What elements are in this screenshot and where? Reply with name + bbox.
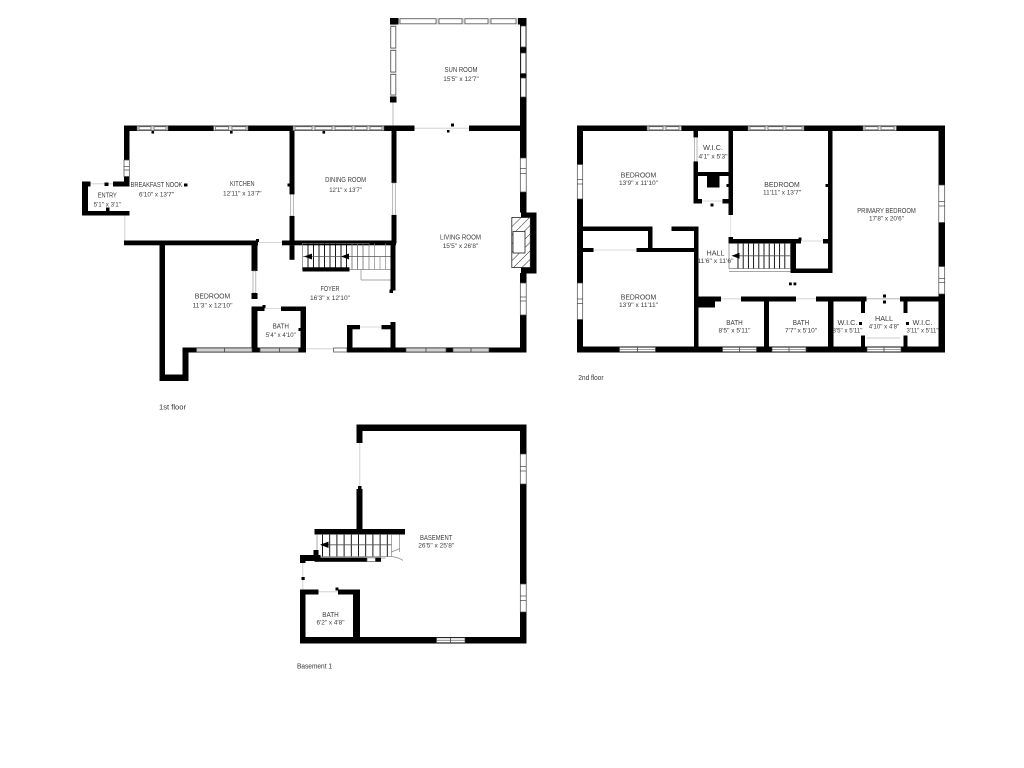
svg-text:5'4" x 4'10": 5'4" x 4'10"	[266, 332, 297, 339]
svg-text:HALL: HALL	[707, 249, 725, 258]
svg-text:BREAKFAST NOOK: BREAKFAST NOOK	[131, 180, 183, 189]
svg-text:4'10" x 4'8": 4'10" x 4'8"	[869, 323, 900, 330]
svg-text:12'1" x 13'7": 12'1" x 13'7"	[329, 187, 362, 194]
svg-text:15'5" x 26'8": 15'5" x 26'8"	[443, 243, 479, 250]
svg-text:BATH: BATH	[793, 318, 809, 327]
svg-text:SUN ROOM: SUN ROOM	[445, 65, 478, 74]
svg-text:BATH: BATH	[726, 318, 742, 327]
svg-text:FOYER: FOYER	[321, 284, 340, 293]
svg-text:PRIMARY BEDROOM: PRIMARY BEDROOM	[857, 206, 916, 215]
svg-text:LIVING ROOM: LIVING ROOM	[440, 233, 481, 242]
svg-text:8'5" x 5'11": 8'5" x 5'11"	[719, 327, 752, 334]
svg-text:3'11" x 5'11": 3'11" x 5'11"	[907, 327, 940, 334]
svg-text:HALL: HALL	[875, 314, 893, 323]
svg-text:W.I.C.: W.I.C.	[703, 143, 723, 152]
svg-text:W.I.C.: W.I.C.	[838, 318, 858, 327]
svg-text:12'11" x 13'7": 12'11" x 13'7"	[223, 190, 262, 197]
svg-text:BATH: BATH	[322, 610, 338, 619]
svg-text:BEDROOM: BEDROOM	[195, 291, 231, 300]
svg-text:26'5" x 25'8": 26'5" x 25'8"	[418, 542, 455, 549]
svg-text:6'10" x 13'7": 6'10" x 13'7"	[139, 192, 175, 199]
svg-text:17'8" x 20'6": 17'8" x 20'6"	[869, 215, 905, 222]
svg-text:BEDROOM: BEDROOM	[764, 180, 800, 189]
svg-text:11'11" x 13'7": 11'11" x 13'7"	[763, 189, 802, 196]
svg-text:BEDROOM: BEDROOM	[621, 170, 657, 179]
svg-text:13'9" x 11'11": 13'9" x 11'11"	[619, 302, 659, 309]
svg-text:KITCHEN: KITCHEN	[230, 179, 255, 188]
svg-text:ENTRY: ENTRY	[98, 191, 117, 200]
svg-text:BATH: BATH	[273, 322, 289, 331]
svg-text:6'2" x 4'8": 6'2" x 4'8"	[317, 619, 346, 626]
svg-text:4'1" x 5'3": 4'1" x 5'3"	[699, 153, 729, 160]
svg-text:1st floor: 1st floor	[159, 403, 187, 412]
svg-text:W.I.C.: W.I.C.	[913, 318, 933, 327]
svg-text:16'3" x 12'10": 16'3" x 12'10"	[310, 295, 351, 302]
svg-text:Basement 1: Basement 1	[297, 661, 332, 670]
svg-text:DINING ROOM: DINING ROOM	[325, 175, 366, 184]
svg-text:7'7" x 5'10": 7'7" x 5'10"	[785, 327, 818, 334]
svg-text:11'3" x 12'10": 11'3" x 12'10"	[193, 302, 234, 309]
svg-text:BASEMENT: BASEMENT	[420, 533, 453, 542]
svg-text:3'5" x 5'11": 3'5" x 5'11"	[833, 327, 864, 334]
svg-text:15'5" x 12'7": 15'5" x 12'7"	[443, 76, 479, 83]
svg-text:13'9" x 11'10": 13'9" x 11'10"	[619, 180, 659, 187]
svg-text:2nd floor: 2nd floor	[578, 373, 604, 382]
svg-text:5'1" x 3'1": 5'1" x 3'1"	[94, 201, 122, 208]
svg-text:BEDROOM: BEDROOM	[621, 292, 657, 301]
